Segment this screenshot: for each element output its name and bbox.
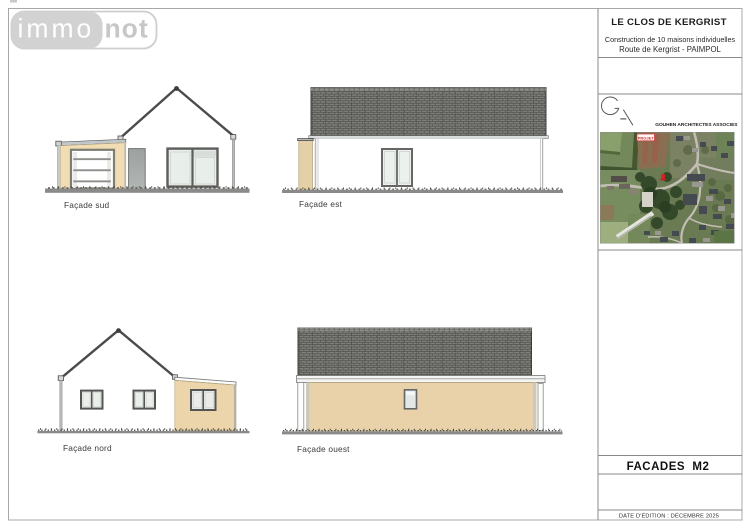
svg-text:not: not (105, 14, 149, 44)
svg-text:Façade est: Façade est (299, 199, 343, 209)
svg-text:LE CLOS DE KERGRIST: LE CLOS DE KERGRIST (611, 17, 727, 28)
svg-text:Construction de 10 maisons ind: Construction de 10 maisons individuelles (605, 35, 736, 44)
svg-text:immo: immo (18, 14, 95, 44)
svg-text:GOUHEN ARCHITECTES ASSOCIES: GOUHEN ARCHITECTES ASSOCIES (655, 122, 738, 128)
svg-text:Façade ouest: Façade ouest (297, 444, 350, 454)
svg-text:Route de Kergrist - PAIMPOL: Route de Kergrist - PAIMPOL (619, 45, 721, 54)
svg-text:PROJET: PROJET (638, 135, 655, 140)
svg-text:FACADES M2: FACADES M2 (627, 461, 710, 473)
svg-text:Façade nord: Façade nord (63, 443, 112, 453)
svg-text:Façade sud: Façade sud (64, 200, 110, 210)
svg-text:DATE D'ÉDITION : DÉCEMBRE 2025: DATE D'ÉDITION : DÉCEMBRE 2025 (619, 512, 719, 519)
